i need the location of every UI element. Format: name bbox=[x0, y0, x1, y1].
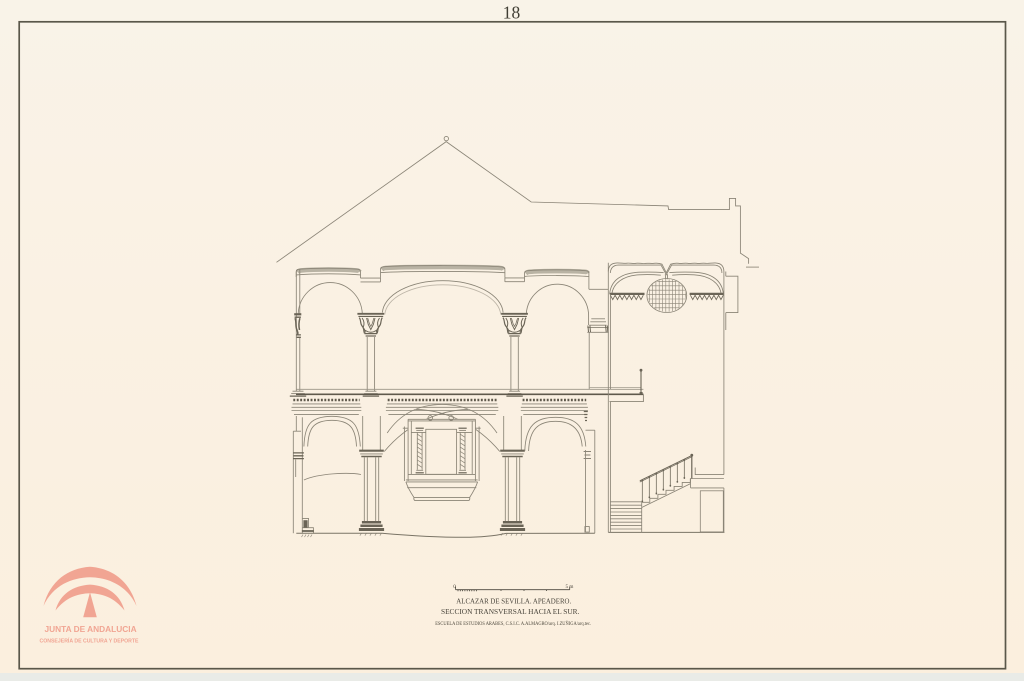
svg-text:CONSEJERÍA DE CULTURA Y DEPORT: CONSEJERÍA DE CULTURA Y DEPORTE bbox=[40, 637, 139, 645]
svg-text:JUNTA DE ANDALUCIA: JUNTA DE ANDALUCIA bbox=[45, 624, 137, 634]
svg-text:18: 18 bbox=[503, 3, 521, 23]
svg-text:0: 0 bbox=[453, 584, 456, 590]
svg-text:ALCAZAR DE SEVILLA. APEADERO.: ALCAZAR DE SEVILLA. APEADERO. bbox=[456, 596, 571, 605]
svg-text:5 m: 5 m bbox=[566, 584, 574, 590]
svg-text:ESCUELA DE ESTUDIOS ARABES, C.: ESCUELA DE ESTUDIOS ARABES, C.S.I.C. A.A… bbox=[435, 621, 591, 627]
svg-text:SECCION TRANSVERSAL HACIA EL S: SECCION TRANSVERSAL HACIA EL SUR. bbox=[441, 607, 579, 616]
